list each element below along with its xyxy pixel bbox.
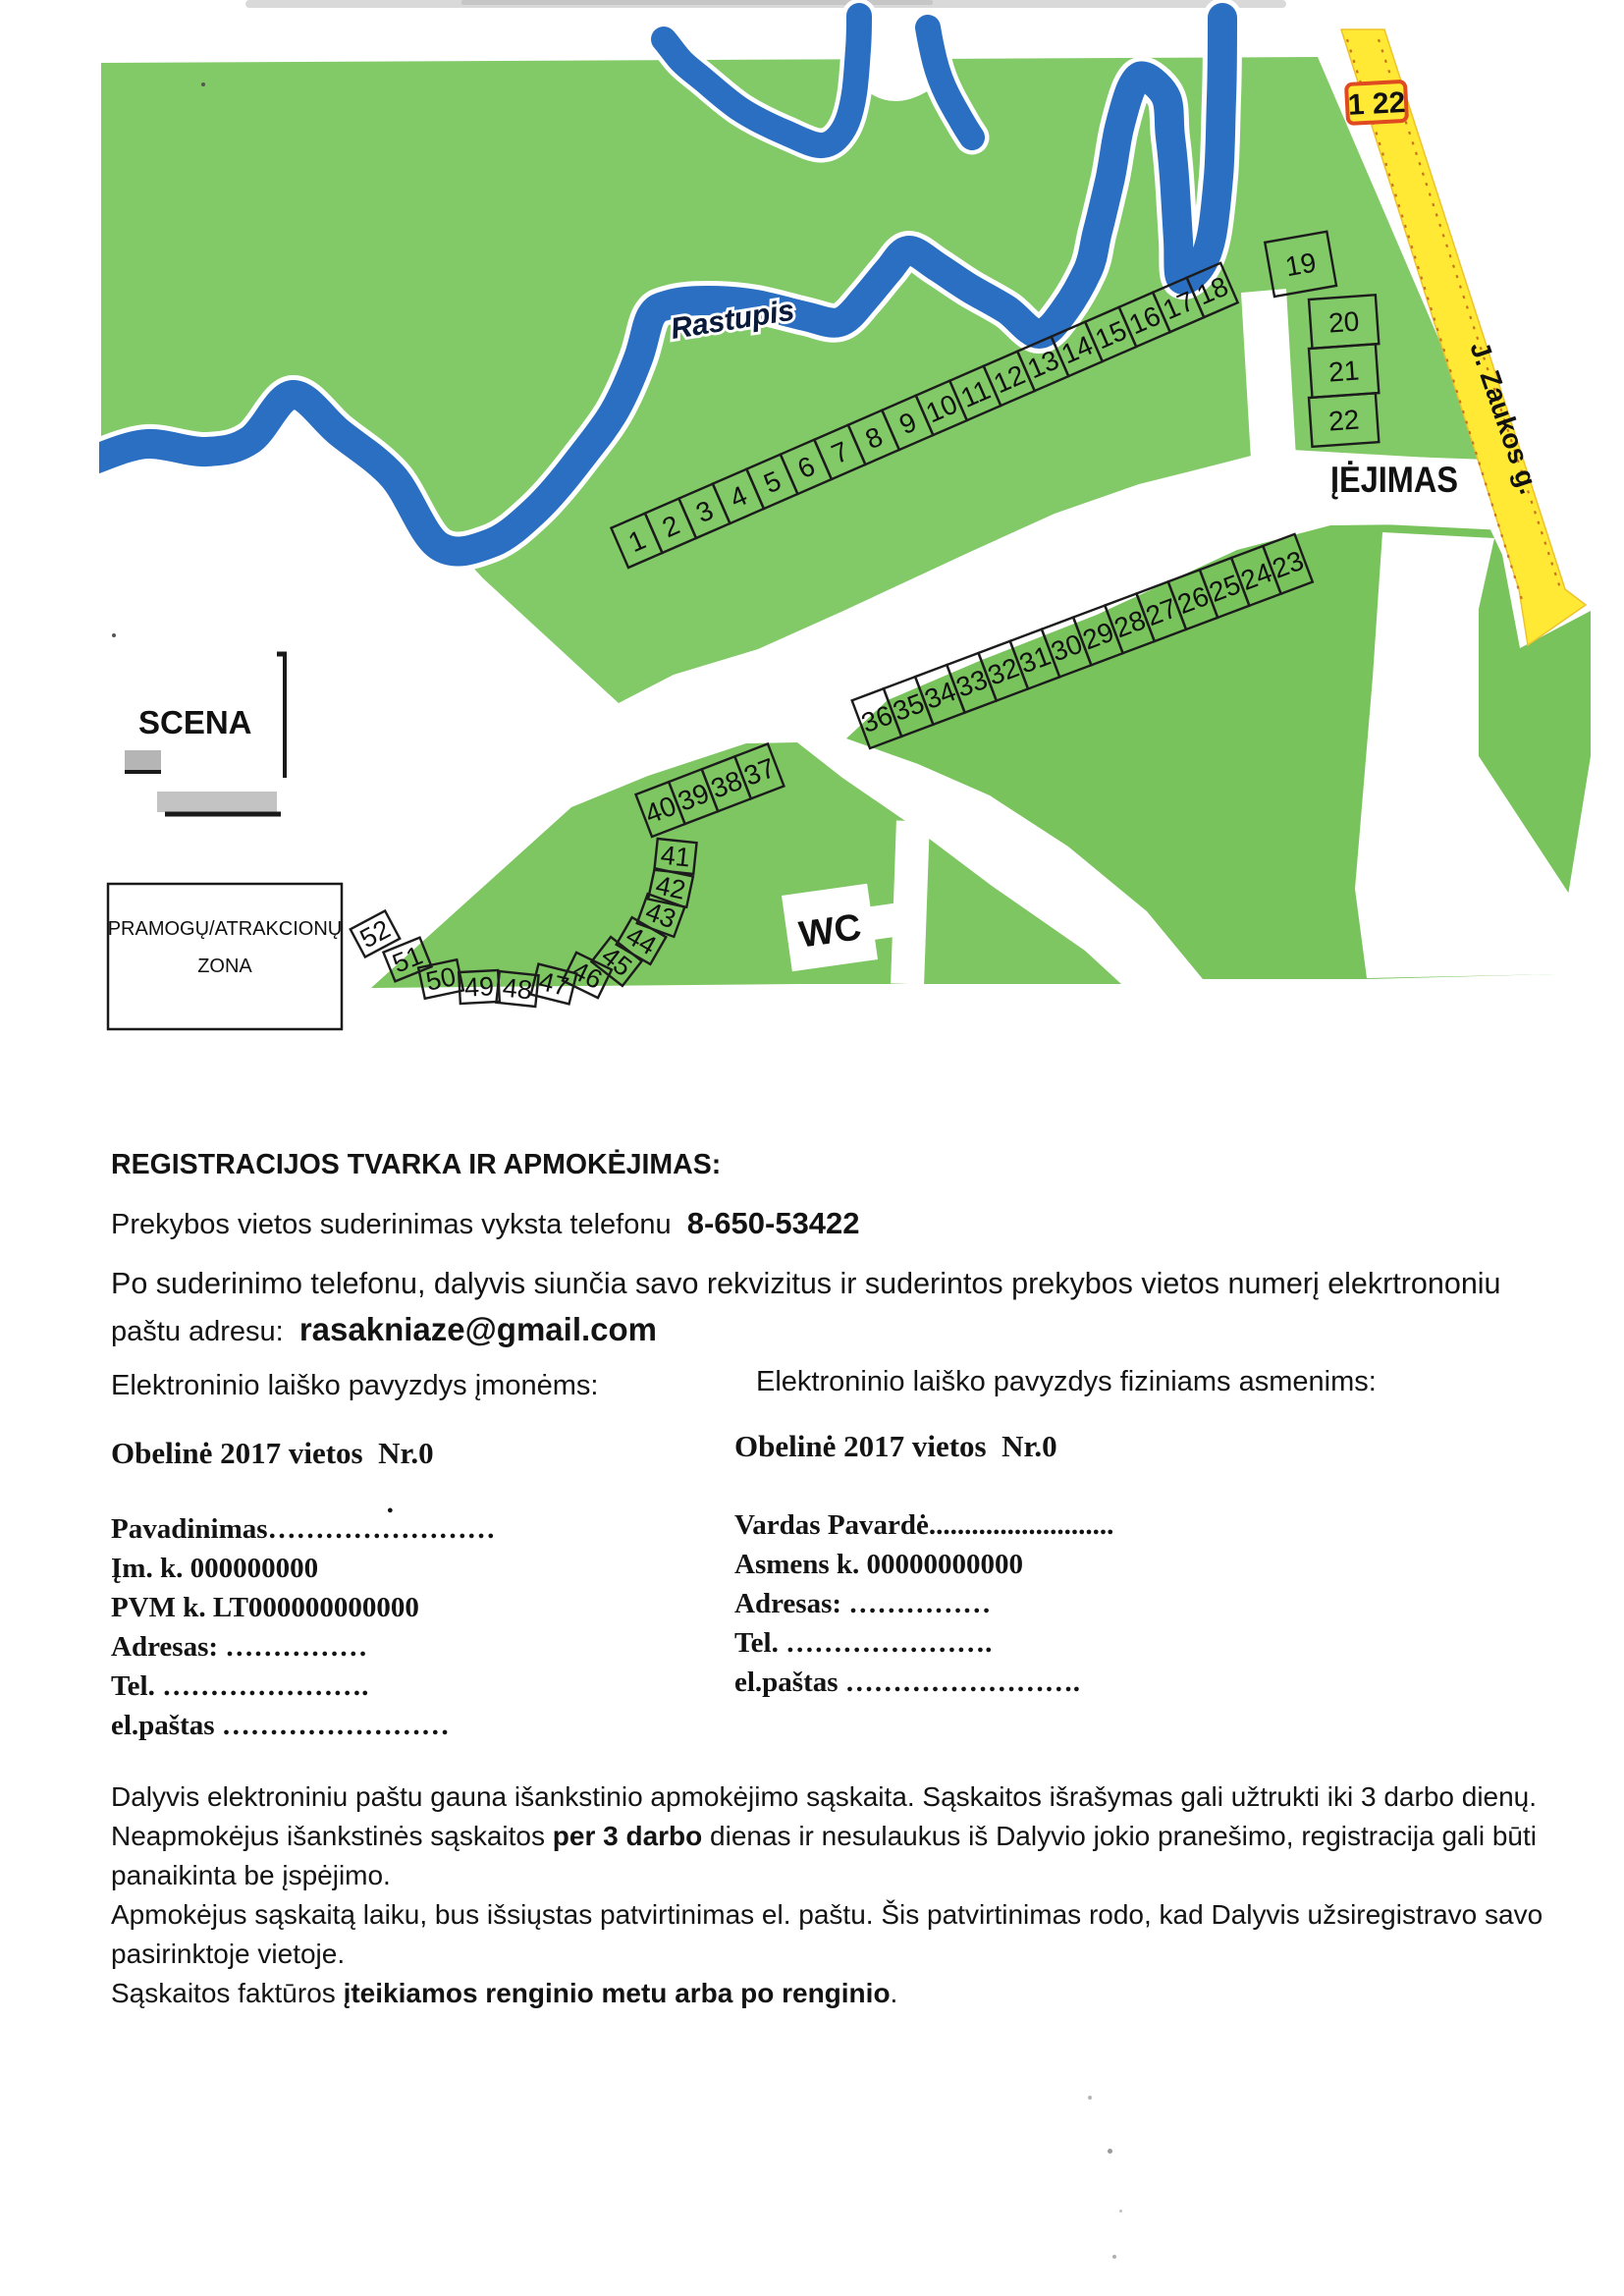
svg-text:49: 49: [463, 971, 495, 1003]
svg-text:ZONA: ZONA: [197, 956, 252, 977]
svg-text:21: 21: [1327, 355, 1360, 388]
svg-text:WC: WC: [796, 906, 864, 956]
svg-text:20: 20: [1327, 306, 1360, 339]
svg-text:41: 41: [659, 841, 691, 873]
svg-text:19: 19: [1283, 246, 1319, 282]
svg-text:22: 22: [1327, 405, 1360, 437]
svg-text:SCENA: SCENA: [138, 704, 252, 740]
svg-text:1 22: 1 22: [1347, 86, 1406, 122]
svg-text:ĮĖJIMAS: ĮĖJIMAS: [1330, 460, 1458, 500]
svg-text:PRAMOGŲ/ATRAKCIONŲ: PRAMOGŲ/ATRAKCIONŲ: [108, 918, 343, 940]
svg-text:48: 48: [501, 973, 533, 1006]
